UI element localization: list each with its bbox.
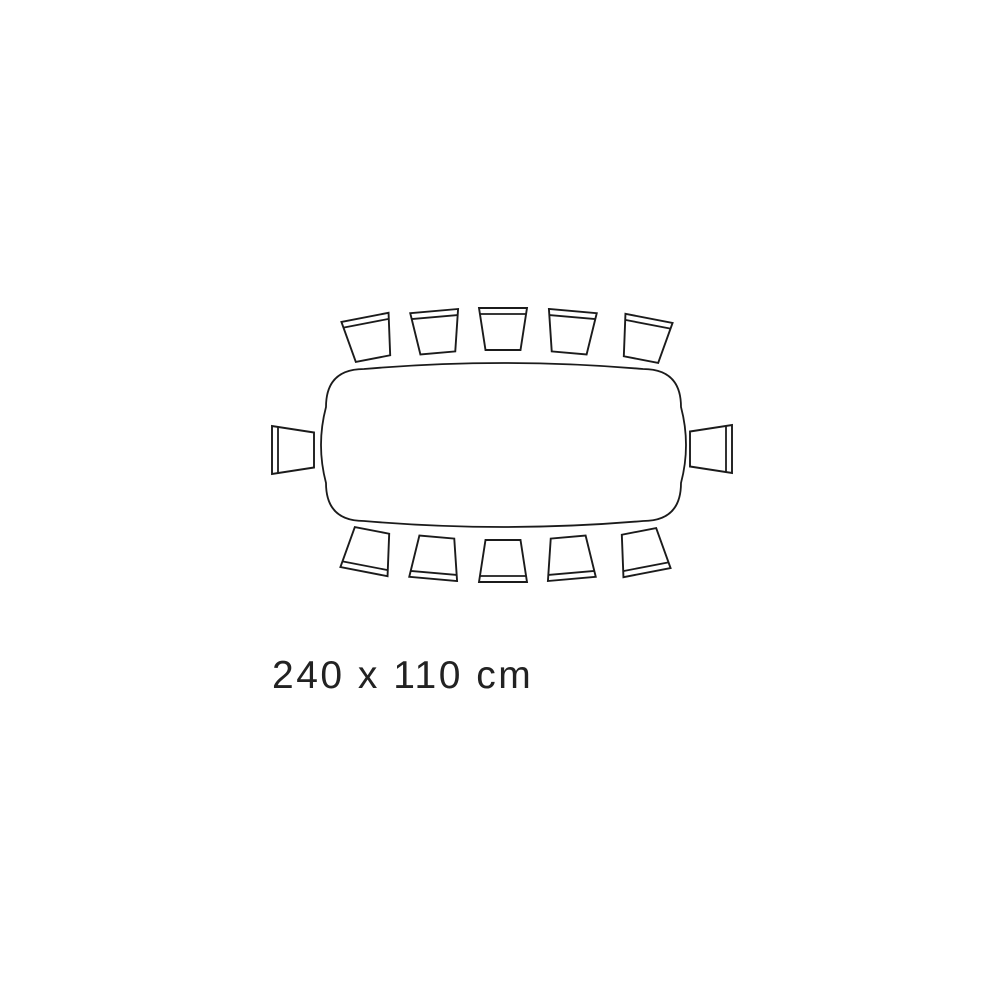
chair-left — [272, 426, 314, 474]
chair-bottom-2 — [409, 535, 460, 581]
dimension-label: 240 x 110 cm — [272, 656, 533, 695]
chair-bottom-5 — [615, 527, 670, 577]
chair-top-2 — [410, 309, 461, 355]
chair-seat-outline — [340, 526, 395, 576]
chair-bottom-1 — [340, 526, 395, 576]
chair-top-5 — [617, 314, 672, 364]
chair-top-1 — [341, 313, 396, 363]
chair-bottom-4 — [544, 535, 595, 581]
chair-top-3 — [479, 308, 527, 350]
chair-seat-outline — [615, 527, 670, 577]
diagram-canvas: 240 x 110 cm — [0, 0, 1000, 1000]
chair-right — [690, 425, 732, 473]
chair-bottom-3 — [479, 540, 527, 582]
chair-seat-outline — [617, 314, 672, 364]
table-seating-diagram — [0, 0, 1000, 1000]
table-top — [321, 363, 686, 527]
chair-seat-outline — [341, 313, 396, 363]
chair-top-4 — [545, 309, 596, 355]
